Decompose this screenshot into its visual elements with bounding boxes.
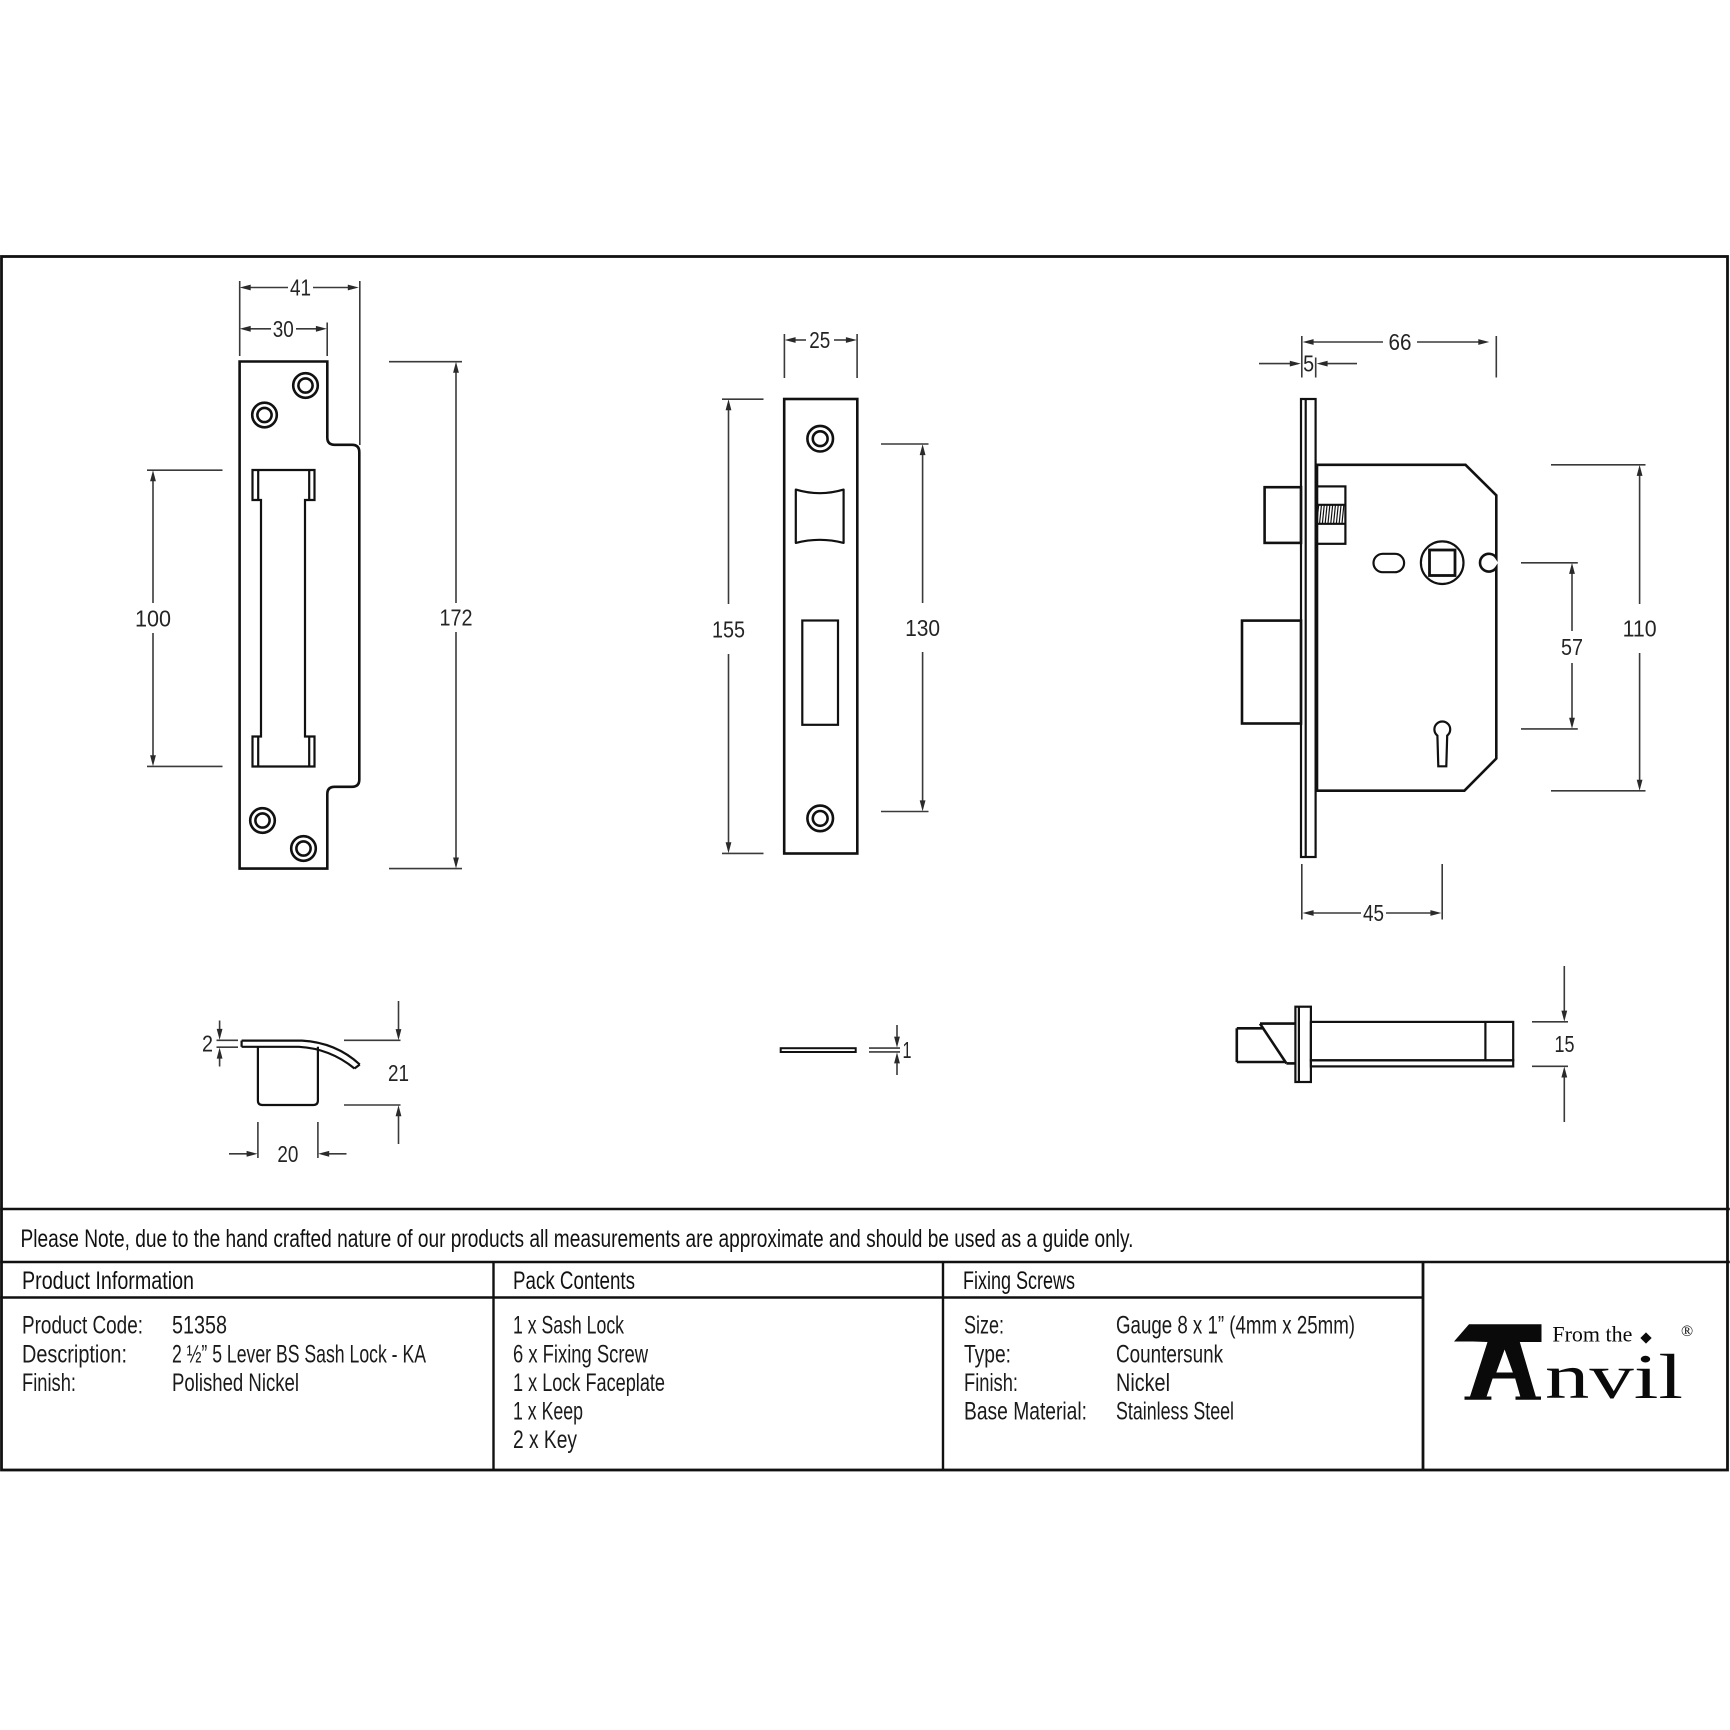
- svg-text:30: 30: [273, 316, 294, 342]
- svg-text:Base Material:: Base Material:: [964, 1398, 1087, 1426]
- svg-text:nvil: nvil: [1545, 1341, 1683, 1412]
- svg-text:20: 20: [277, 1141, 298, 1167]
- svg-text:Polished Nickel: Polished Nickel: [172, 1369, 299, 1397]
- svg-text:6 x Fixing Screw: 6 x Fixing Screw: [513, 1341, 649, 1369]
- svg-text:130: 130: [905, 615, 940, 641]
- svg-text:2 x Key: 2 x Key: [513, 1426, 577, 1454]
- svg-text:Type:: Type:: [964, 1341, 1011, 1369]
- svg-text:2: 2: [202, 1031, 213, 1057]
- svg-text:Stainless Steel: Stainless Steel: [1116, 1398, 1234, 1426]
- svg-text:57: 57: [1561, 634, 1583, 660]
- svg-text:15: 15: [1555, 1031, 1575, 1057]
- svg-text:172: 172: [440, 605, 473, 631]
- svg-text:Nickel: Nickel: [1116, 1369, 1170, 1397]
- svg-text:25: 25: [809, 327, 830, 353]
- svg-text:Size:: Size:: [964, 1312, 1004, 1340]
- svg-text:100: 100: [135, 606, 171, 632]
- svg-text:110: 110: [1623, 616, 1657, 642]
- svg-text:Fixing Screws: Fixing Screws: [963, 1267, 1075, 1295]
- svg-text:Please Note, due to the hand c: Please Note, due to the hand crafted nat…: [21, 1225, 1134, 1253]
- svg-text:Finish:: Finish:: [22, 1369, 76, 1397]
- svg-text:Gauge 8 x 1” (4mm x 25mm): Gauge 8 x 1” (4mm x 25mm): [1116, 1312, 1355, 1340]
- svg-text:Finish:: Finish:: [964, 1369, 1018, 1397]
- svg-text:45: 45: [1363, 900, 1384, 926]
- svg-text:1: 1: [903, 1037, 912, 1063]
- svg-text:Product Information: Product Information: [22, 1267, 194, 1295]
- svg-text:51358: 51358: [172, 1312, 227, 1340]
- svg-text:Product Code:: Product Code:: [22, 1312, 143, 1340]
- svg-text:Pack Contents: Pack Contents: [513, 1267, 635, 1295]
- svg-text:2 ½” 5 Lever BS Sash Lock - KA: 2 ½” 5 Lever BS Sash Lock - KA: [172, 1341, 426, 1369]
- svg-text:1 x Lock Faceplate: 1 x Lock Faceplate: [513, 1369, 665, 1397]
- svg-text:1 x Sash Lock: 1 x Sash Lock: [513, 1312, 624, 1340]
- svg-text:41: 41: [290, 275, 311, 301]
- svg-text:Description:: Description:: [22, 1341, 127, 1369]
- svg-text:66: 66: [1389, 329, 1412, 355]
- svg-text:1 x Keep: 1 x Keep: [513, 1398, 583, 1426]
- svg-text:Countersunk: Countersunk: [1116, 1341, 1223, 1369]
- svg-text:5: 5: [1303, 351, 1314, 377]
- svg-text:®: ®: [1681, 1323, 1693, 1340]
- svg-text:21: 21: [388, 1060, 409, 1086]
- svg-text:155: 155: [712, 617, 745, 643]
